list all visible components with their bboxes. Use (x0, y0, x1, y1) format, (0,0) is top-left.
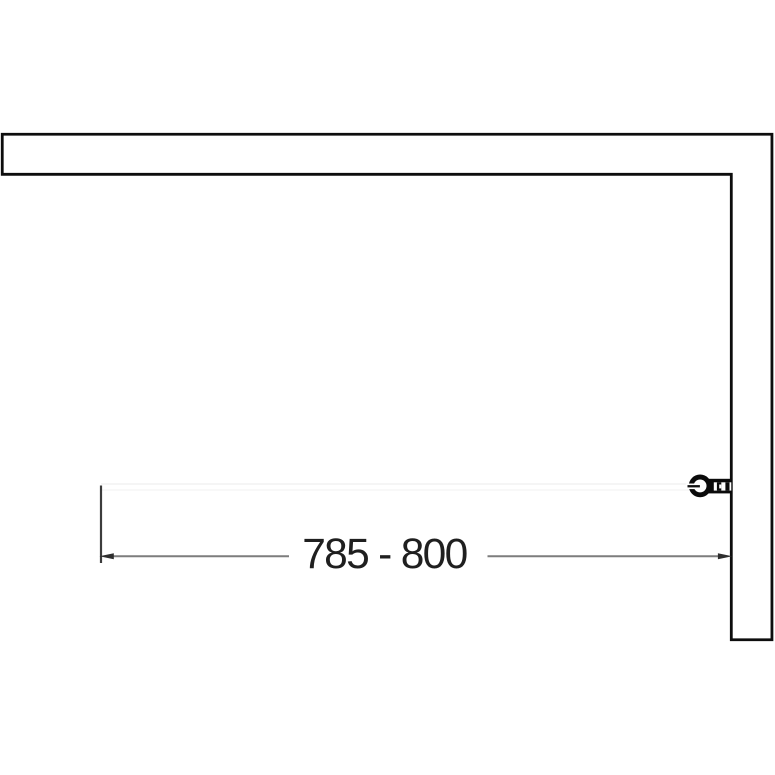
svg-text:785 - 800: 785 - 800 (302, 531, 466, 578)
